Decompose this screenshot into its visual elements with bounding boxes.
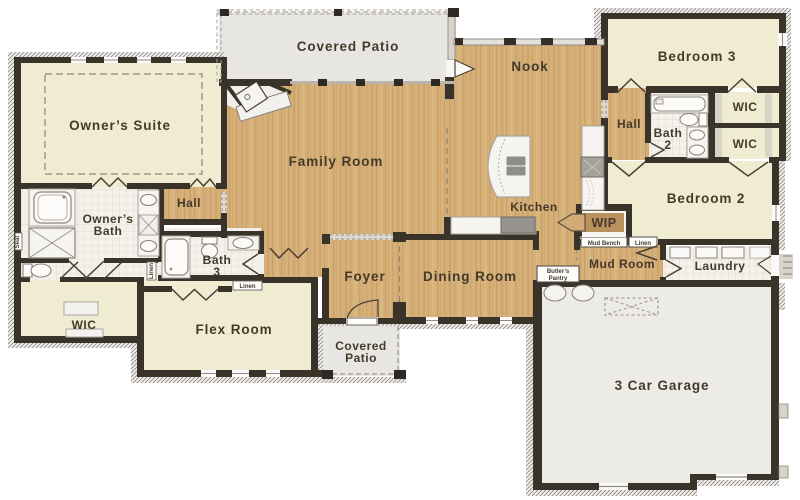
svg-text:Mud Room: Mud Room [589,257,655,271]
svg-text:Mud Bench: Mud Bench [588,241,621,247]
svg-text:Kitchen: Kitchen [510,200,558,214]
svg-text:Pantry: Pantry [549,276,568,282]
svg-text:Covered Patio: Covered Patio [297,39,399,54]
svg-text:Dining Room: Dining Room [423,269,517,284]
svg-text:Laundry: Laundry [695,259,746,273]
svg-text:Bath: Bath [94,224,123,238]
svg-text:Linen: Linen [635,241,651,247]
svg-text:WIC: WIC [733,100,758,114]
svg-text:3 Car Garage: 3 Car Garage [615,378,710,393]
svg-text:Linen: Linen [149,263,155,279]
svg-text:Family Room: Family Room [289,154,384,169]
svg-text:WIP: WIP [591,216,616,230]
svg-text:Seat: Seat [15,236,21,249]
svg-text:Bedroom 3: Bedroom 3 [658,49,737,64]
svg-text:Butler’s: Butler’s [547,269,570,275]
svg-text:Hall: Hall [617,117,641,131]
svg-text:2: 2 [664,138,671,152]
svg-text:Owner’s Suite: Owner’s Suite [69,118,171,133]
svg-text:Flex Room: Flex Room [195,322,272,337]
svg-text:Nook: Nook [511,59,548,74]
svg-text:WIC: WIC [72,318,97,332]
svg-text:Foyer: Foyer [344,269,385,284]
svg-text:Linen: Linen [240,284,256,290]
svg-text:Patio: Patio [345,351,377,365]
svg-text:Hall: Hall [177,196,201,210]
svg-text:WIC: WIC [733,137,758,151]
svg-text:Bedroom 2: Bedroom 2 [667,191,746,206]
svg-text:3: 3 [213,265,220,279]
